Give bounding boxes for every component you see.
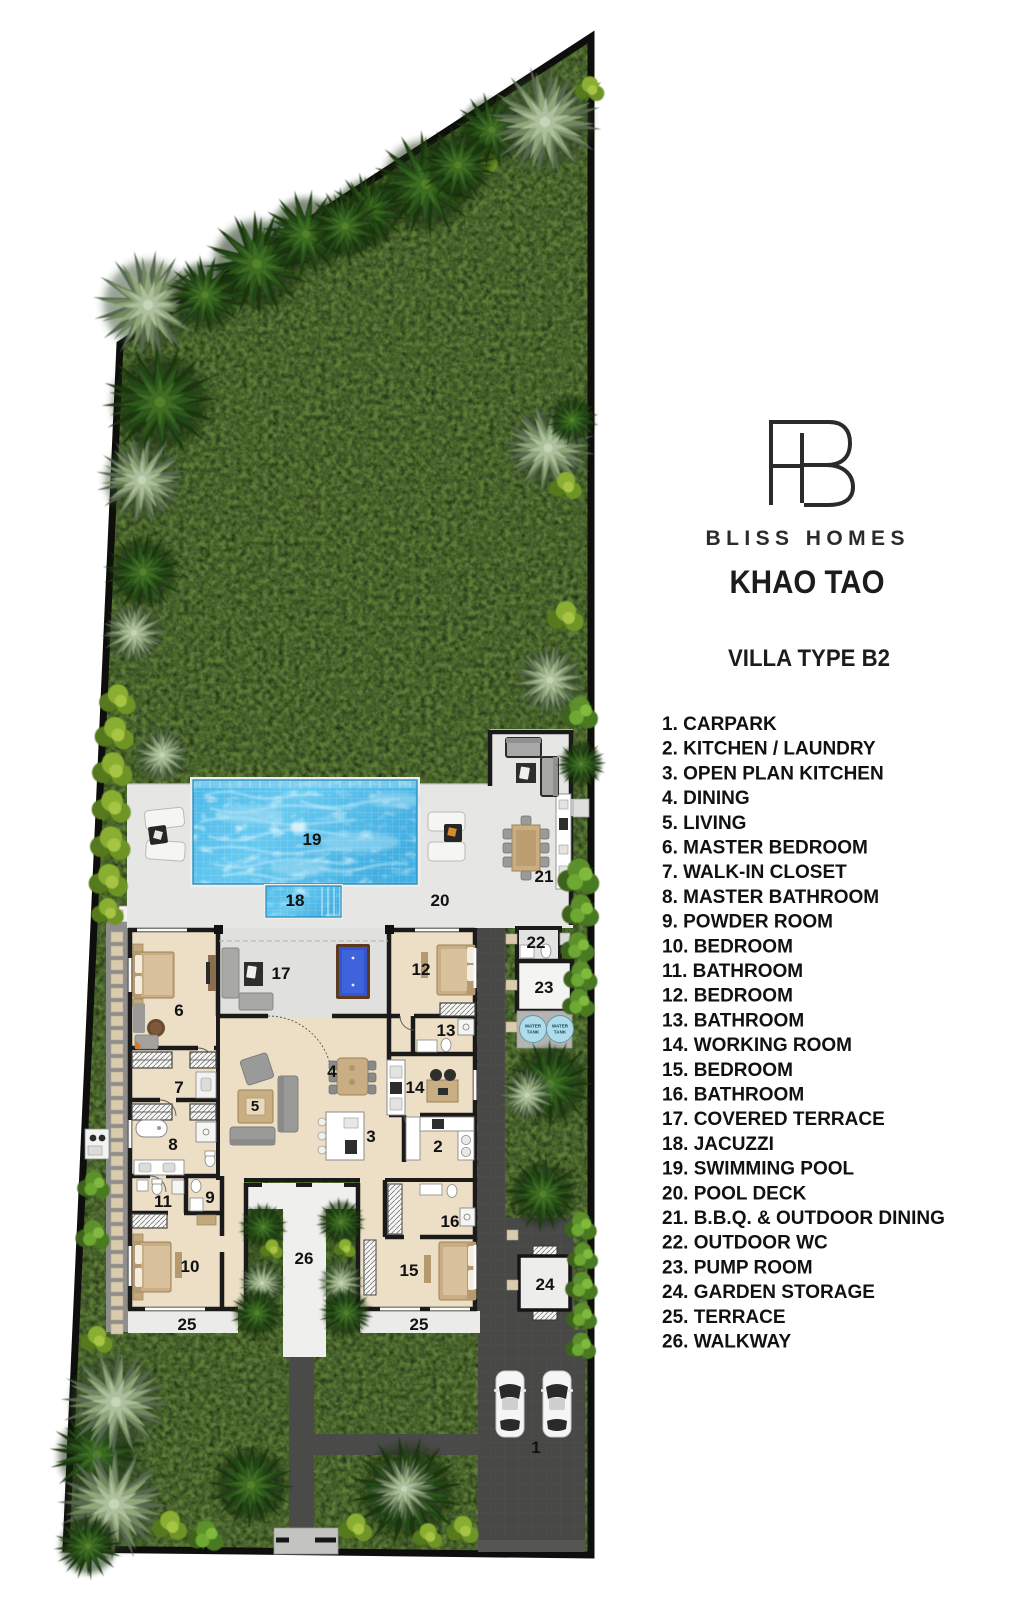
svg-text:VILLA TYPE B2: VILLA TYPE B2	[728, 645, 890, 672]
svg-text:26: 26	[295, 1249, 314, 1268]
svg-text:7: 7	[174, 1078, 183, 1097]
svg-text:11: 11	[154, 1192, 172, 1211]
svg-text:19. SWIMMING POOL: 19. SWIMMING POOL	[662, 1159, 855, 1180]
svg-text:10. BEDROOM: 10. BEDROOM	[662, 936, 793, 957]
svg-text:20: 20	[431, 891, 450, 910]
svg-text:25: 25	[410, 1315, 429, 1334]
svg-text:7. WALK-IN CLOSET: 7. WALK-IN CLOSET	[662, 862, 847, 883]
svg-text:26. WALKWAY: 26. WALKWAY	[662, 1332, 791, 1353]
svg-text:17: 17	[272, 964, 291, 983]
svg-text:17. COVERED TERRACE: 17. COVERED TERRACE	[662, 1109, 885, 1130]
svg-text:8. MASTER BATHROOM: 8. MASTER BATHROOM	[662, 887, 879, 908]
svg-text:1. CARPARK: 1. CARPARK	[662, 714, 777, 735]
svg-text:3. OPEN PLAN KITCHEN: 3. OPEN PLAN KITCHEN	[662, 763, 884, 784]
svg-text:23. PUMP ROOM: 23. PUMP ROOM	[662, 1257, 813, 1278]
svg-text:10: 10	[181, 1257, 200, 1276]
svg-text:14. WORKING ROOM: 14. WORKING ROOM	[662, 1035, 852, 1056]
svg-text:18: 18	[286, 891, 305, 910]
svg-text:5: 5	[251, 1098, 259, 1115]
svg-text:4. DINING: 4. DINING	[662, 788, 750, 809]
svg-text:BLISS HOMES: BLISS HOMES	[706, 527, 911, 550]
svg-text:20. POOL DECK: 20. POOL DECK	[662, 1183, 807, 1204]
svg-text:15: 15	[400, 1261, 419, 1280]
svg-text:15. BEDROOM: 15. BEDROOM	[662, 1060, 793, 1081]
svg-text:KHAO TAO: KHAO TAO	[730, 564, 885, 600]
svg-text:21. B.B.Q. & OUTDOOR DINING: 21. B.B.Q. & OUTDOOR DINING	[662, 1208, 945, 1229]
svg-text:5. LIVING: 5. LIVING	[662, 813, 746, 834]
svg-text:13. BATHROOM: 13. BATHROOM	[662, 1010, 804, 1031]
svg-text:2. KITCHEN / LAUNDRY: 2. KITCHEN / LAUNDRY	[662, 739, 876, 760]
svg-text:25: 25	[178, 1315, 197, 1334]
svg-text:9. POWDER ROOM: 9. POWDER ROOM	[662, 912, 833, 933]
svg-text:11. BATHROOM: 11. BATHROOM	[662, 961, 803, 982]
svg-text:WATER: WATER	[525, 1024, 542, 1029]
svg-text:16: 16	[441, 1212, 460, 1231]
svg-text:24. GARDEN STORAGE: 24. GARDEN STORAGE	[662, 1282, 875, 1303]
svg-text:12: 12	[412, 960, 431, 979]
svg-text:24: 24	[536, 1275, 555, 1294]
svg-text:6: 6	[174, 1001, 183, 1020]
svg-text:TANK: TANK	[554, 1030, 567, 1035]
svg-text:12. BEDROOM: 12. BEDROOM	[662, 986, 793, 1007]
svg-text:WATER: WATER	[552, 1024, 569, 1029]
svg-text:TANK: TANK	[527, 1030, 540, 1035]
svg-text:9: 9	[205, 1188, 214, 1207]
svg-text:1: 1	[531, 1438, 540, 1457]
svg-text:3: 3	[366, 1127, 375, 1146]
svg-text:14: 14	[406, 1078, 425, 1097]
svg-text:13: 13	[437, 1021, 456, 1040]
svg-text:21: 21	[535, 867, 554, 886]
svg-text:8: 8	[168, 1135, 177, 1154]
svg-text:4: 4	[327, 1062, 337, 1081]
svg-text:16. BATHROOM: 16. BATHROOM	[662, 1085, 804, 1106]
svg-text:22: 22	[527, 933, 546, 952]
svg-text:25. TERRACE: 25. TERRACE	[662, 1307, 786, 1328]
svg-text:19: 19	[303, 830, 322, 849]
svg-text:23: 23	[535, 978, 554, 997]
svg-text:6. MASTER BEDROOM: 6. MASTER BEDROOM	[662, 838, 868, 859]
svg-text:18. JACUZZI: 18. JACUZZI	[662, 1134, 774, 1155]
svg-text:22. OUTDOOR WC: 22. OUTDOOR WC	[662, 1233, 828, 1254]
svg-text:2: 2	[433, 1137, 442, 1156]
